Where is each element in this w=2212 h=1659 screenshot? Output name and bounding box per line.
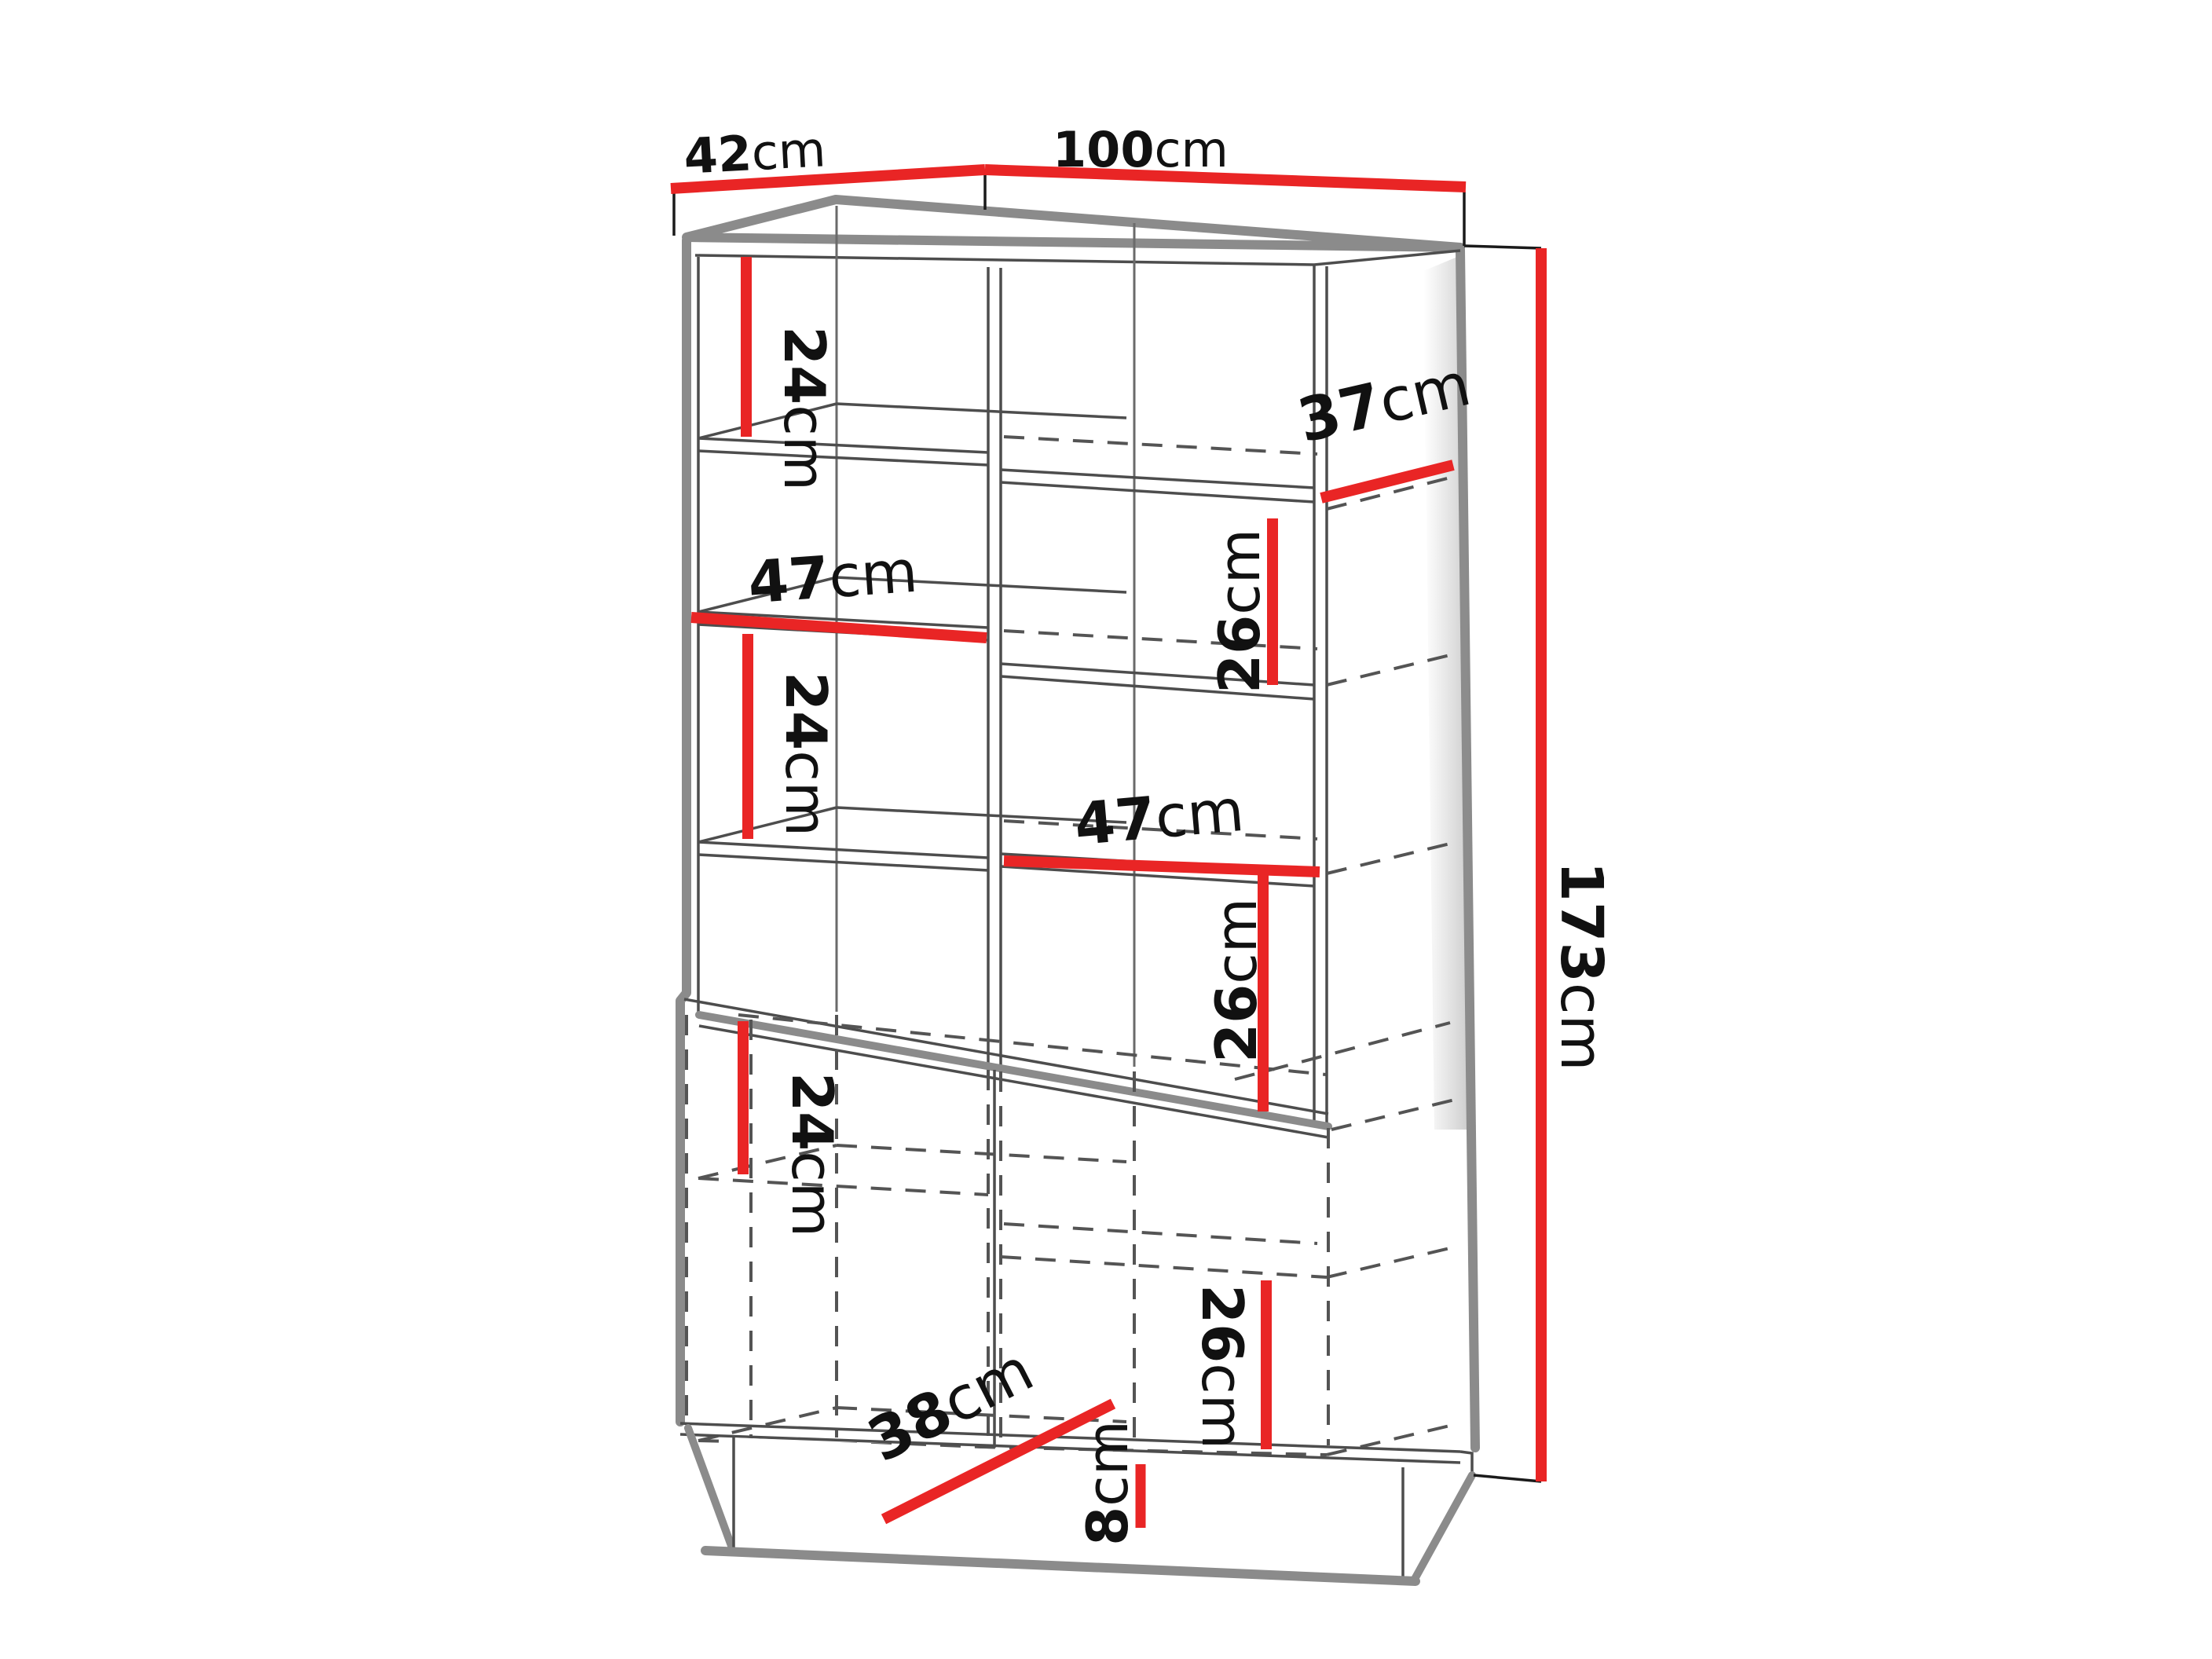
label-24-top: 24cm (771, 326, 837, 491)
ext-right-horizontal (1464, 246, 1541, 248)
label-depth-42: 42cm (683, 120, 827, 185)
label-47-left: 47cm (746, 538, 920, 617)
right-bottom-step (1460, 1452, 1472, 1475)
label-24-door: 24cm (779, 1072, 845, 1237)
label-26-upper-right: 26cm (1207, 529, 1273, 694)
label-24-mid: 24cm (773, 672, 839, 837)
left-bottom-wedge (688, 1428, 734, 1552)
right-bottom-wedge (1414, 1475, 1472, 1580)
label-26-bottom-right: 26cm (1189, 1284, 1255, 1449)
ext-bottom-right (1474, 1475, 1541, 1481)
label-plinth-8: 8cm (1075, 1420, 1141, 1546)
label-26-mid-right: 26cm (1203, 898, 1269, 1063)
diagram-page: 42cm 100cm 173cm 37cm 24cm 26cm 47cm 24c… (0, 0, 2212, 1659)
label-width-100: 100cm (1053, 121, 1229, 178)
label-height-173: 173cm (1547, 861, 1615, 1071)
top-face (687, 200, 1460, 247)
cabinet-dimension-diagram: 42cm 100cm 173cm 37cm 24cm 26cm 47cm 24c… (0, 0, 2212, 1659)
